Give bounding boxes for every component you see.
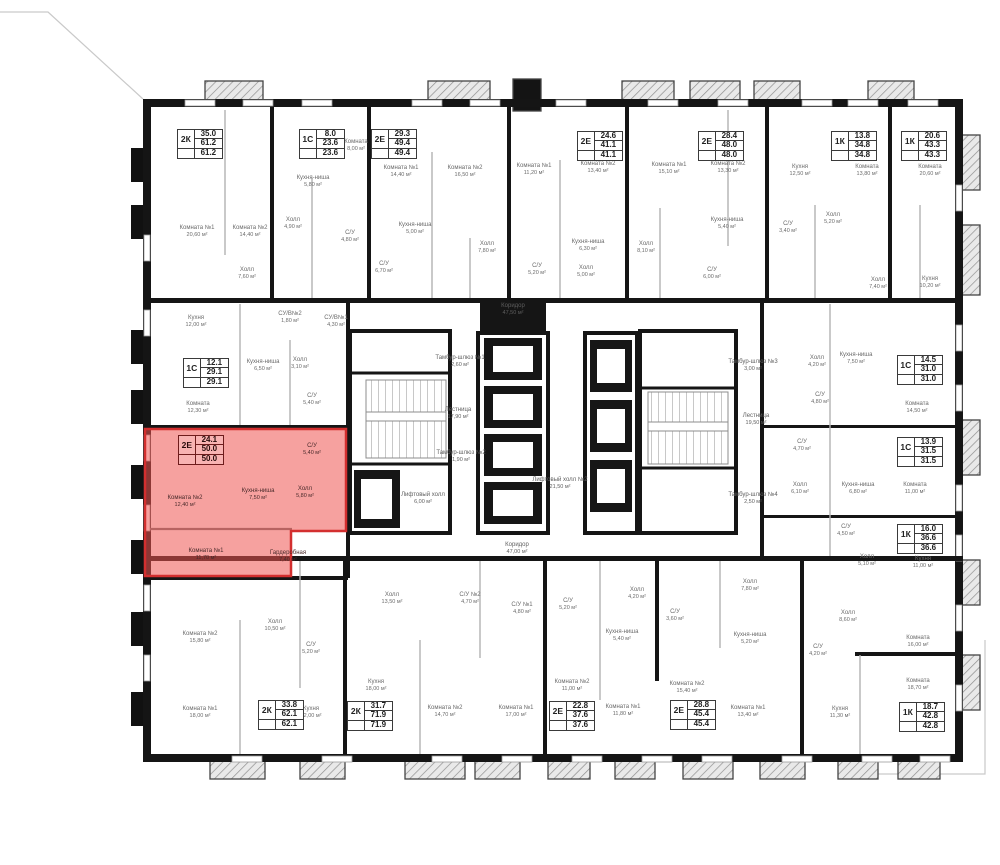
room-name: Комната №2 (168, 495, 203, 502)
room-label: Кухня-ниша 6,50 м² (247, 359, 280, 373)
apartment-card[interactable]: 2К 33.8 62.1 62.1 (258, 700, 304, 730)
room-label: С/У 6,70 м² (375, 261, 393, 275)
room-name: Комната (905, 401, 929, 408)
core-area-label: Лифтовый холл 6,00 м² (401, 492, 445, 506)
room-label: С/У 5,20 м² (302, 642, 320, 656)
room-name: Кухня (830, 706, 851, 713)
core-area-name: Лифтовый холл (401, 492, 445, 499)
apartment-card[interactable]: 1С 12.1 29.1 29.1 (183, 358, 229, 388)
room-name: СУ/В№1 (324, 315, 347, 322)
room-area: 4,20 м² (808, 362, 826, 369)
room-label: Кухня 12,00 м² (186, 315, 207, 329)
room-name: Комната №2 (448, 165, 483, 172)
room-name: Комната №2 (233, 225, 268, 232)
room-label: С/У 6,00 м² (703, 267, 721, 281)
room-label: Кухня 11,30 м² (830, 706, 851, 720)
room-area: 5,20 м² (528, 270, 546, 277)
apartment-card[interactable]: 1С 13.9 31.5 31.5 (897, 437, 943, 467)
room-area: 4,70 м² (793, 446, 811, 453)
room-area: 10,50 м² (265, 626, 286, 633)
room-area: 11,80 м² (606, 711, 641, 718)
room-area: 10,20 м² (920, 283, 941, 290)
room-area: 13,40 м² (581, 168, 616, 175)
apartment-card[interactable]: 1К 20.6 43.3 43.3 (901, 131, 947, 161)
room-label: Кухня-ниша 6,80 м² (842, 482, 875, 496)
room-area: 16,50 м² (448, 172, 483, 179)
labels-layer: Комната №1 20,60 м² Комната №2 14,40 м² … (0, 0, 1000, 865)
room-name: Комната №1 (652, 162, 687, 169)
apartment-card[interactable]: 2Е 28.8 45.4 45.4 (670, 700, 716, 730)
room-name: С/У (559, 598, 577, 605)
room-label: С/У 5,40 м² (303, 393, 321, 407)
room-area: 5,20 м² (559, 605, 577, 612)
room-area: 4,80 м² (341, 237, 359, 244)
room-name: С/У (666, 609, 684, 616)
room-name: С/У (375, 261, 393, 268)
room-area: 16,00 м² (906, 642, 930, 649)
room-label: Комната №1 17,00 м² (499, 705, 534, 719)
room-area: 14,50 м² (905, 408, 929, 415)
room-name: Кухня-ниша (840, 352, 873, 359)
room-label: Холл 5,80 м² (296, 486, 314, 500)
apartment-type: 2Е (578, 132, 595, 151)
room-name: Комната №1 (384, 165, 419, 172)
room-name: Кухня (186, 315, 207, 322)
room-name: Кухня (366, 679, 387, 686)
core-area-name: Лестница (445, 407, 471, 414)
room-area: 7,80 м² (478, 248, 496, 255)
room-area: 4,80 м² (511, 609, 532, 616)
apartment-total-area-2: 71.9 (365, 721, 392, 730)
apartment-total-area: 29.1 (201, 368, 228, 377)
room-area: 8,00 м² (344, 146, 368, 153)
core-area-name: Коридор (505, 542, 529, 549)
room-area: 11,00 м² (913, 563, 934, 570)
apartment-total-area: 36.6 (915, 534, 942, 543)
room-name: Кухня (790, 164, 811, 171)
apartment-total-area-2: 43.3 (919, 151, 946, 160)
apartment-card-empty-cell (348, 721, 365, 730)
room-name: Комната №1 (189, 548, 224, 555)
core-area-value: 21,50 м² (532, 484, 587, 491)
core-area-label: Лестница 17,90 м² (445, 407, 471, 421)
room-name: Кухня-ниша (842, 482, 875, 489)
room-label: С/У №2 4,70 м² (459, 592, 480, 606)
room-label: Гардеробная 7,40 м² (270, 550, 306, 564)
apartment-card[interactable]: 2Е 28.4 48.0 48.0 (698, 131, 744, 161)
core-area-value: 17,90 м² (445, 414, 471, 421)
room-name: Комната (918, 164, 942, 171)
apartment-total-area: 41.1 (595, 141, 622, 150)
apartment-total-area-2: 62.1 (276, 720, 303, 729)
room-area: 11,20 м² (517, 170, 552, 177)
apartment-total-area: 23.6 (317, 139, 344, 148)
room-area: 20,60 м² (918, 171, 942, 178)
apartment-total-area-2: 31.0 (915, 375, 942, 384)
apartment-card-empty-cell (898, 457, 915, 466)
apartment-card-empty-cell (578, 151, 595, 160)
core-area-value: 47,00 м² (505, 549, 529, 556)
room-area: 8,60 м² (839, 617, 857, 624)
room-name: Холл (284, 217, 302, 224)
apartment-card[interactable]: 2Е 24.1 50.0 50.0 (178, 435, 224, 465)
room-label: С/У 3,40 м² (779, 221, 797, 235)
room-area: 12,30 м² (186, 408, 210, 415)
room-label: Холл 10,50 м² (265, 619, 286, 633)
apartment-card-empty-cell (179, 455, 196, 464)
apartment-card-empty-cell (184, 378, 201, 387)
room-name: Комната (855, 164, 879, 171)
apartment-total-area: 71.9 (365, 711, 392, 720)
room-area: 5,20 м² (734, 639, 767, 646)
room-label: Кухня-ниша 5,40 м² (711, 217, 744, 231)
room-name: Комната №1 (499, 705, 534, 712)
room-area: 12,50 м² (790, 171, 811, 178)
room-label: С/У 5,40 м² (303, 443, 321, 457)
room-label: Кухня-ниша 7,50 м² (242, 488, 275, 502)
room-name: Холл (791, 482, 809, 489)
room-name: С/У (303, 443, 321, 450)
room-area: 6,10 м² (791, 489, 809, 496)
apartment-total-area-2: 42.8 (917, 722, 944, 731)
room-label: Комната 8,00 м² (344, 139, 368, 153)
apartment-total-area: 31.5 (915, 447, 942, 456)
apartment-type: 2Е (179, 436, 196, 455)
room-label: Комната №2 11,00 м² (555, 679, 590, 693)
core-area-name: Лестница (743, 413, 769, 420)
room-label: Кухня-ниша 6,30 м² (572, 239, 605, 253)
room-label: Комната №2 12,40 м² (168, 495, 203, 509)
room-area: 3,10 м² (291, 364, 309, 371)
room-label: Комната №2 13,30 м² (711, 161, 746, 175)
apartment-card[interactable]: 1С 14.5 31.0 31.0 (897, 355, 943, 385)
apartment-total-area-2: 36.6 (915, 544, 942, 553)
room-label: Комната №1 18,00 м² (183, 706, 218, 720)
apartment-type: 2Е (699, 132, 716, 151)
room-label: Холл 8,10 м² (637, 241, 655, 255)
room-name: Комната №1 (183, 706, 218, 713)
room-name: Комната №2 (670, 681, 705, 688)
room-name: С/У (779, 221, 797, 228)
apartment-type: 1С (898, 438, 915, 457)
room-name: Холл (265, 619, 286, 626)
room-area: 11,00 м² (903, 489, 927, 496)
room-label: Холл 5,00 м² (577, 265, 595, 279)
room-area: 4,50 м² (837, 531, 855, 538)
room-area: 7,50 м² (242, 495, 275, 502)
room-name: Комната №1 (180, 225, 215, 232)
room-name: Кухня-ниша (711, 217, 744, 224)
core-area-name: Лифтовый холл №2 (532, 477, 587, 484)
room-label: Комната №2 13,40 м² (581, 161, 616, 175)
apartment-total-area: 45.4 (688, 710, 715, 719)
room-area: 15,40 м² (670, 688, 705, 695)
room-label: Комната 13,80 м² (855, 164, 879, 178)
room-area: 7,40 м² (270, 557, 306, 564)
apartment-type: 1С (184, 359, 201, 378)
room-name: Кухня-ниша (297, 175, 330, 182)
apartment-type: 1К (898, 525, 915, 544)
room-name: С/У (793, 439, 811, 446)
room-label: Комната №2 14,40 м² (233, 225, 268, 239)
room-area: 13,50 м² (382, 599, 403, 606)
room-label: С/У 4,50 м² (837, 524, 855, 538)
room-area: 11,70 м² (189, 555, 224, 562)
room-area: 6,70 м² (375, 268, 393, 275)
room-name: Кухня (920, 276, 941, 283)
room-name: С/У №1 (511, 602, 532, 609)
core-area-name: Тамбур-шлюз №2 (436, 450, 485, 457)
apartment-total-area-2: 31.5 (915, 457, 942, 466)
apartment-card[interactable]: 2К 31.7 71.9 71.9 (347, 701, 393, 731)
room-label: Кухня-ниша 5,00 м² (399, 222, 432, 236)
room-label: Холл 5,20 м² (824, 212, 842, 226)
core-area-label: Коридор 47,00 м² (505, 542, 529, 556)
room-area: 7,50 м² (840, 359, 873, 366)
room-label: С/У 4,20 м² (809, 644, 827, 658)
room-label: Комната 12,30 м² (186, 401, 210, 415)
room-name: Кухня-ниша (734, 632, 767, 639)
room-name: Холл (238, 267, 256, 274)
room-area: 12,00 м² (186, 322, 207, 329)
room-name: Комната (906, 678, 930, 685)
room-name: С/У (809, 644, 827, 651)
room-label: Комната №1 11,80 м² (606, 704, 641, 718)
apartment-type: 2К (259, 701, 276, 720)
room-area: 7,80 м² (741, 586, 759, 593)
core-area-value: 2,60 м² (435, 362, 484, 369)
apartment-card-empty-cell (902, 151, 919, 160)
room-name: Комната №2 (428, 705, 463, 712)
room-name: С/У (528, 263, 546, 270)
room-area: 6,50 м² (247, 366, 280, 373)
apartment-type: 2Е (372, 130, 389, 149)
apartment-total-area: 43.3 (919, 141, 946, 150)
core-area-value: 47,50 м² (501, 310, 525, 317)
core-area-label: Лифтовый холл №2 21,50 м² (532, 477, 587, 491)
apartment-type: 2Е (550, 702, 567, 721)
room-name: С/У (811, 392, 829, 399)
room-label: Холл 5,10 м² (858, 554, 876, 568)
room-area: 18,00 м² (366, 686, 387, 693)
core-area-value: 6,00 м² (401, 499, 445, 506)
room-area: 14,40 м² (384, 172, 419, 179)
room-label: Комната 16,00 м² (906, 635, 930, 649)
apartment-card[interactable]: 1К 16.0 36.6 36.6 (897, 524, 943, 554)
core-area-name: Тамбур-шлюз №3 (728, 359, 777, 366)
room-name: Комната №1 (517, 163, 552, 170)
room-label: Кухня-ниша 5,80 м² (297, 175, 330, 189)
apartment-total-area-2: 48.0 (716, 151, 743, 160)
room-name: Комната №2 (711, 161, 746, 168)
room-label: СУ/В№1 4,30 м² (324, 315, 347, 329)
room-label: Комната №1 15,10 м² (652, 162, 687, 176)
room-name: Холл (858, 554, 876, 561)
room-label: С/У 4,70 м² (793, 439, 811, 453)
apartment-card-empty-cell (898, 544, 915, 553)
room-label: С/У 5,20 м² (528, 263, 546, 277)
room-area: 5,40 м² (303, 400, 321, 407)
room-area: 11,00 м² (555, 686, 590, 693)
apartment-card[interactable]: 1К 18.7 42.8 42.8 (899, 702, 945, 732)
room-name: Холл (637, 241, 655, 248)
room-label: Комната №1 13,40 м² (731, 705, 766, 719)
room-label: Холл 7,80 м² (741, 579, 759, 593)
room-name: Кухня-ниша (247, 359, 280, 366)
room-area: 6,80 м² (842, 489, 875, 496)
room-area: 12,40 м² (168, 502, 203, 509)
room-label: Комната №1 11,70 м² (189, 548, 224, 562)
room-area: 18,70 м² (906, 685, 930, 692)
room-area: 6,30 м² (572, 246, 605, 253)
room-label: Комната 11,00 м² (903, 482, 927, 496)
room-name: Холл (291, 357, 309, 364)
room-label: Холл 4,20 м² (808, 355, 826, 369)
core-area-value: 3,00 м² (728, 366, 777, 373)
room-name: СУ/В№2 (278, 311, 301, 318)
apartment-type: 2К (178, 130, 195, 149)
apartment-total-area-2: 34.8 (849, 151, 876, 160)
room-label: Кухня 11,00 м² (913, 556, 934, 570)
core-area-label: Лестница 19,50 м² (743, 413, 769, 427)
room-area: 4,30 м² (324, 322, 347, 329)
room-area: 18,00 м² (183, 713, 218, 720)
room-label: Кухня 12,50 м² (790, 164, 811, 178)
room-area: 4,80 м² (811, 399, 829, 406)
apartment-total-area: 61.2 (195, 139, 222, 148)
room-label: СУ/В№2 1,80 м² (278, 311, 301, 325)
room-area: 7,60 м² (238, 274, 256, 281)
room-name: Холл (382, 592, 403, 599)
room-name: Комната (903, 482, 927, 489)
room-area: 13,40 м² (731, 712, 766, 719)
room-area: 7,40 м² (869, 284, 887, 291)
room-label: Комната 14,50 м² (905, 401, 929, 415)
room-name: С/У (303, 393, 321, 400)
room-label: Кухня-ниша 5,20 м² (734, 632, 767, 646)
floor-plan-canvas: Комната №1 20,60 м² Комната №2 14,40 м² … (0, 0, 1000, 865)
apartment-card-empty-cell (550, 721, 567, 730)
room-label: Комната №2 15,80 м² (183, 631, 218, 645)
apartment-total-area-2: 49.4 (389, 149, 416, 158)
apartment-type: 1К (902, 132, 919, 151)
core-area-value: 2,50 м² (728, 499, 777, 506)
room-label: С/У 4,80 м² (811, 392, 829, 406)
room-area: 13,80 м² (855, 171, 879, 178)
room-name: Комната (186, 401, 210, 408)
room-label: Комната №1 20,60 м² (180, 225, 215, 239)
room-name: Холл (869, 277, 887, 284)
apartment-total-area: 62.1 (276, 710, 303, 719)
room-area: 4,20 м² (809, 651, 827, 658)
apartment-card-empty-cell (832, 151, 849, 160)
core-area-value: 1,90 м² (436, 457, 485, 464)
room-name: Холл (628, 587, 646, 594)
room-label: Комната №2 16,50 м² (448, 165, 483, 179)
room-label: Кухня-ниша 7,50 м² (840, 352, 873, 366)
room-label: Холл 3,10 м² (291, 357, 309, 371)
apartment-card[interactable]: 2Е 29.3 49.4 49.4 (371, 129, 417, 159)
room-area: 1,80 м² (278, 318, 301, 325)
room-label: Холл 13,50 м² (382, 592, 403, 606)
apartment-card[interactable]: 2Е 22.8 37.6 37.6 (549, 701, 595, 731)
room-area: 3,60 м² (666, 616, 684, 623)
room-label: Холл 8,60 м² (839, 610, 857, 624)
room-area: 5,10 м² (858, 561, 876, 568)
apartment-card-empty-cell (699, 151, 716, 160)
apartment-card[interactable]: 1С 8.0 23.6 23.6 (299, 129, 345, 159)
room-name: Холл (478, 241, 496, 248)
room-area: 6,00 м² (703, 274, 721, 281)
apartment-total-area: 42.8 (917, 712, 944, 721)
apartment-type: 2Е (671, 701, 688, 720)
apartment-total-area-2: 29.1 (201, 378, 228, 387)
apartment-card-empty-cell (300, 149, 317, 158)
room-label: Комната 20,60 м² (918, 164, 942, 178)
apartment-type: 1К (900, 703, 917, 722)
room-label: С/У 4,80 м² (341, 230, 359, 244)
core-area-label: Тамбур-шлюз №4 2,50 м² (728, 492, 777, 506)
room-name: Холл (577, 265, 595, 272)
room-name: Комната №2 (183, 631, 218, 638)
apartment-card[interactable]: 2К 35.0 61.2 61.2 (177, 129, 223, 159)
room-name: Кухня-ниша (572, 239, 605, 246)
room-label: С/У №1 4,80 м² (511, 602, 532, 616)
core-area-label: Тамбур-шлюз №3 3,00 м² (728, 359, 777, 373)
apartment-card[interactable]: 2Е 24.6 41.1 41.1 (577, 131, 623, 161)
room-label: Холл 7,40 м² (869, 277, 887, 291)
room-label: С/У 5,20 м² (559, 598, 577, 612)
apartment-total-area: 50.0 (196, 445, 223, 454)
room-label: Кухня 18,00 м² (366, 679, 387, 693)
room-area: 5,40 м² (303, 450, 321, 457)
room-area: 3,40 м² (779, 228, 797, 235)
room-area: 5,40 м² (711, 224, 744, 231)
room-name: Гардеробная (270, 550, 306, 557)
room-area: 4,70 м² (459, 599, 480, 606)
room-area: 5,00 м² (577, 272, 595, 279)
room-name: Кухня (913, 556, 934, 563)
room-area: 5,20 м² (824, 219, 842, 226)
room-area: 15,10 м² (652, 169, 687, 176)
room-label: Комната №1 11,20 м² (517, 163, 552, 177)
room-label: С/У 3,60 м² (666, 609, 684, 623)
room-area: 17,00 м² (499, 712, 534, 719)
apartment-total-area-2: 41.1 (595, 151, 622, 160)
room-area: 13,30 м² (711, 168, 746, 175)
room-area: 5,80 м² (296, 493, 314, 500)
room-name: С/У (341, 230, 359, 237)
room-name: Комната №1 (731, 705, 766, 712)
room-area: 15,80 м² (183, 638, 218, 645)
apartment-type: 1С (898, 356, 915, 375)
apartment-total-area: 34.8 (849, 141, 876, 150)
room-name: С/У (302, 642, 320, 649)
room-area: 4,20 м² (628, 594, 646, 601)
room-name: С/У (703, 267, 721, 274)
apartment-card-empty-cell (178, 149, 195, 158)
core-area-label: Коридор 47,50 м² (501, 303, 525, 317)
room-area: 14,40 м² (233, 232, 268, 239)
room-name: Кухня-ниша (399, 222, 432, 229)
room-name: Холл (808, 355, 826, 362)
apartment-total-area: 49.4 (389, 139, 416, 148)
room-name: Холл (741, 579, 759, 586)
apartment-card[interactable]: 1К 13.8 34.8 34.8 (831, 131, 877, 161)
room-area: 5,80 м² (297, 182, 330, 189)
apartment-total-area: 48.0 (716, 141, 743, 150)
room-name: Холл (824, 212, 842, 219)
